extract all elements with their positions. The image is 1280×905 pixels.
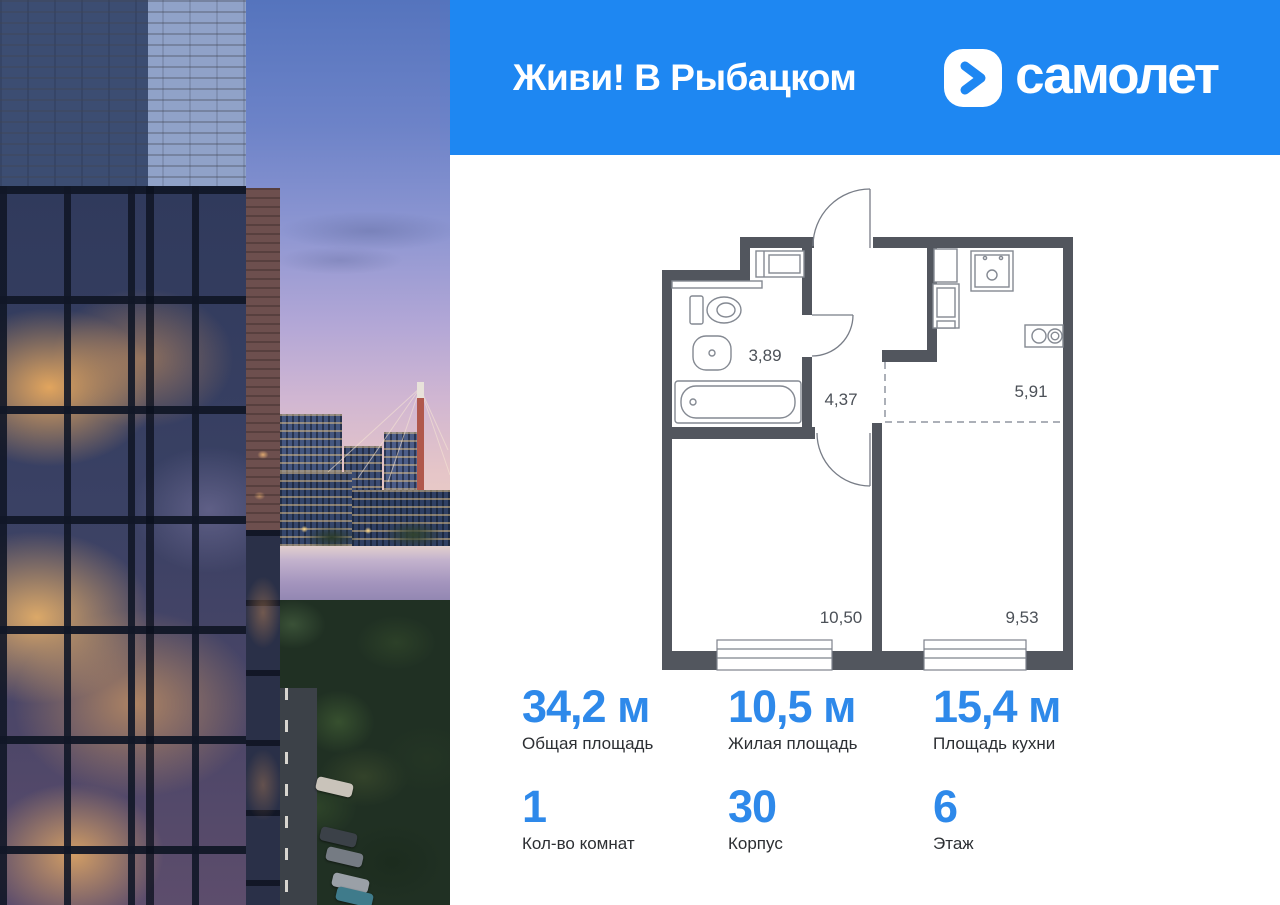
photo-main-building-brick-top: [0, 0, 246, 190]
stat-value: 15,4 м: [933, 684, 1222, 729]
stat-label: Корпус: [728, 834, 933, 854]
apartment-card: Живи! В Рыбацком самолет: [0, 0, 1280, 905]
stat-label: Площадь кухни: [933, 734, 1222, 754]
stat-total-area: 34,2 м Общая площадь: [522, 684, 728, 754]
room-area-label-living-room: 10,50: [820, 608, 863, 627]
photo-main-building-facade: [0, 186, 246, 905]
room-area-label-bedroom: 9,53: [1005, 608, 1038, 627]
photo-embankment: [268, 518, 450, 546]
photo-sky-clouds: [250, 0, 450, 420]
building-photo: [0, 0, 450, 905]
samolet-logo-icon: [944, 49, 1002, 107]
project-title: Живи! В Рыбацком: [513, 57, 856, 99]
stat-floor-number: 6 Этаж: [933, 784, 1222, 854]
stat-living-area: 10,5 м Жилая площадь: [728, 684, 933, 754]
stat-label: Кол-во комнат: [522, 834, 728, 854]
room-area-label-kitchen: 5,91: [1014, 382, 1047, 401]
apartment-stats: 34,2 м Общая площадь 10,5 м Жилая площад…: [522, 684, 1222, 854]
photo-neighbor-building-brick: [246, 188, 280, 530]
samolet-logo: самолет: [944, 49, 1218, 107]
apartment-info-panel: Живи! В Рыбацком самолет: [450, 0, 1280, 905]
photo-neighbor-building-glass: [246, 530, 280, 905]
room-area-label-hallway: 4,37: [824, 390, 857, 409]
stat-value: 1: [522, 784, 728, 829]
stat-value: 34,2 м: [522, 684, 728, 729]
samolet-wordmark: самолет: [1015, 49, 1218, 102]
stat-value: 10,5 м: [728, 684, 933, 729]
floor-plan-doors: [812, 189, 870, 486]
stat-building-number: 30 Корпус: [728, 784, 933, 854]
stat-label: Общая площадь: [522, 734, 728, 754]
photo-parked-cars: [306, 738, 410, 905]
stat-label: Жилая площадь: [728, 734, 933, 754]
stat-kitchen-area: 15,4 м Площадь кухни: [933, 684, 1222, 754]
stat-value: 6: [933, 784, 1222, 829]
photo-river: [268, 546, 450, 608]
stat-value: 30: [728, 784, 933, 829]
photo-cable-bridge: [268, 380, 450, 510]
room-area-label-bathroom: 3,89: [748, 346, 781, 365]
stat-label: Этаж: [933, 834, 1222, 854]
floor-plan: 3,89 4,37 5,91 10,50 9,53: [660, 185, 1080, 675]
header: Живи! В Рыбацком самолет: [450, 0, 1280, 155]
stat-rooms-count: 1 Кол-во комнат: [522, 784, 728, 854]
